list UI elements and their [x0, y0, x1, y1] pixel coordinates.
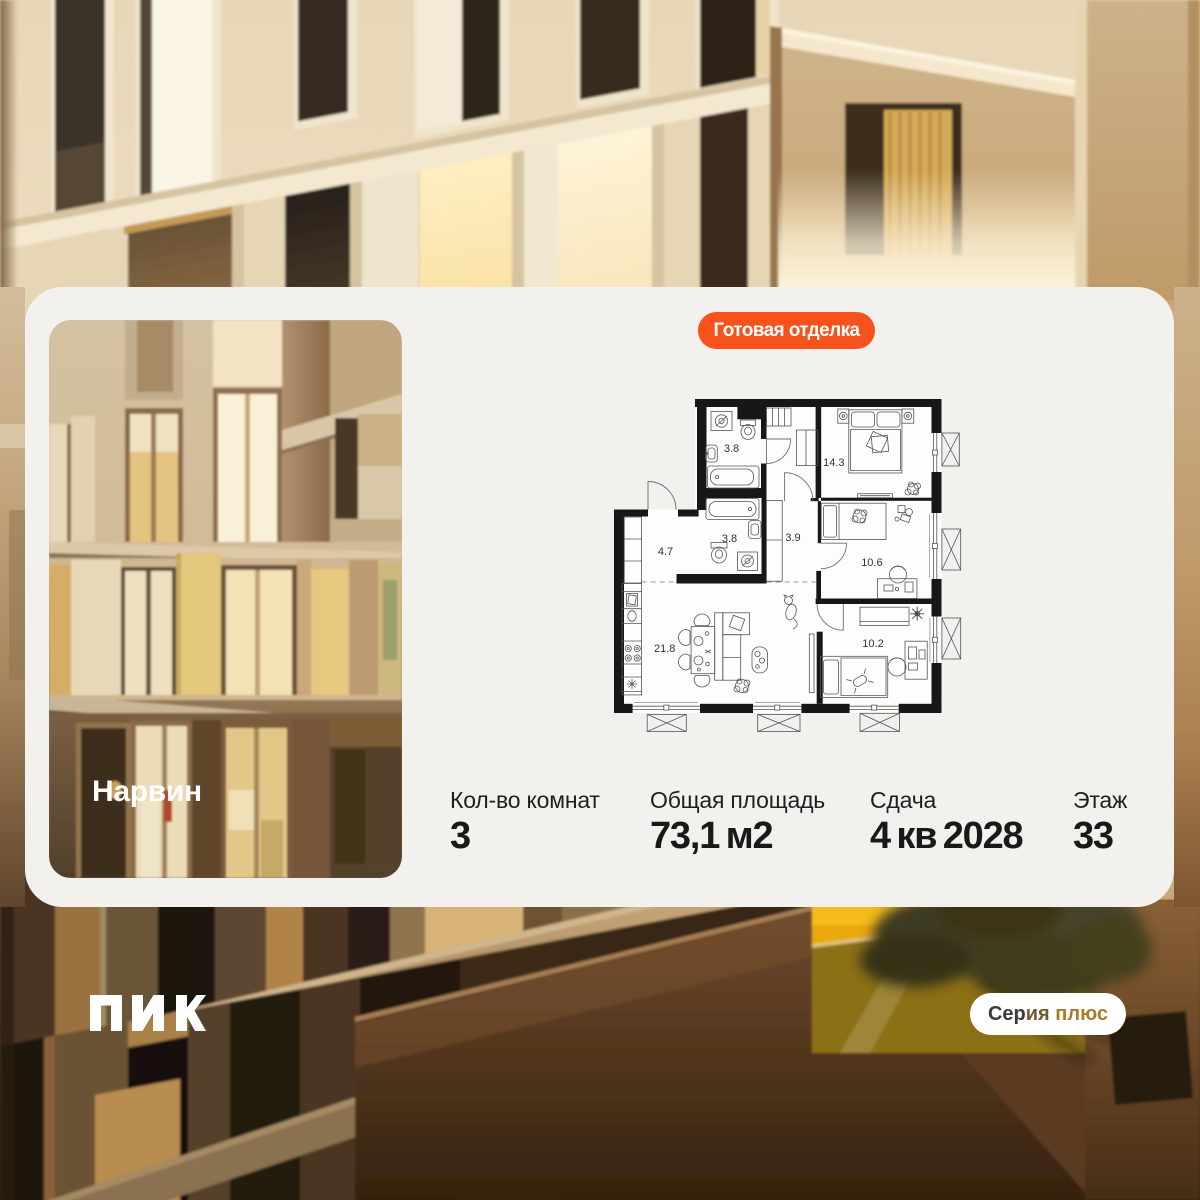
svg-text:21.8: 21.8: [654, 643, 675, 655]
svg-text:14.3: 14.3: [823, 457, 844, 469]
svg-text:3.8: 3.8: [722, 533, 737, 545]
svg-text:4.7: 4.7: [658, 546, 673, 558]
svg-text:3.9: 3.9: [785, 532, 800, 544]
svg-text:10.2: 10.2: [862, 638, 883, 650]
svg-text:3.8: 3.8: [724, 443, 739, 455]
svg-text:10.6: 10.6: [861, 557, 882, 569]
